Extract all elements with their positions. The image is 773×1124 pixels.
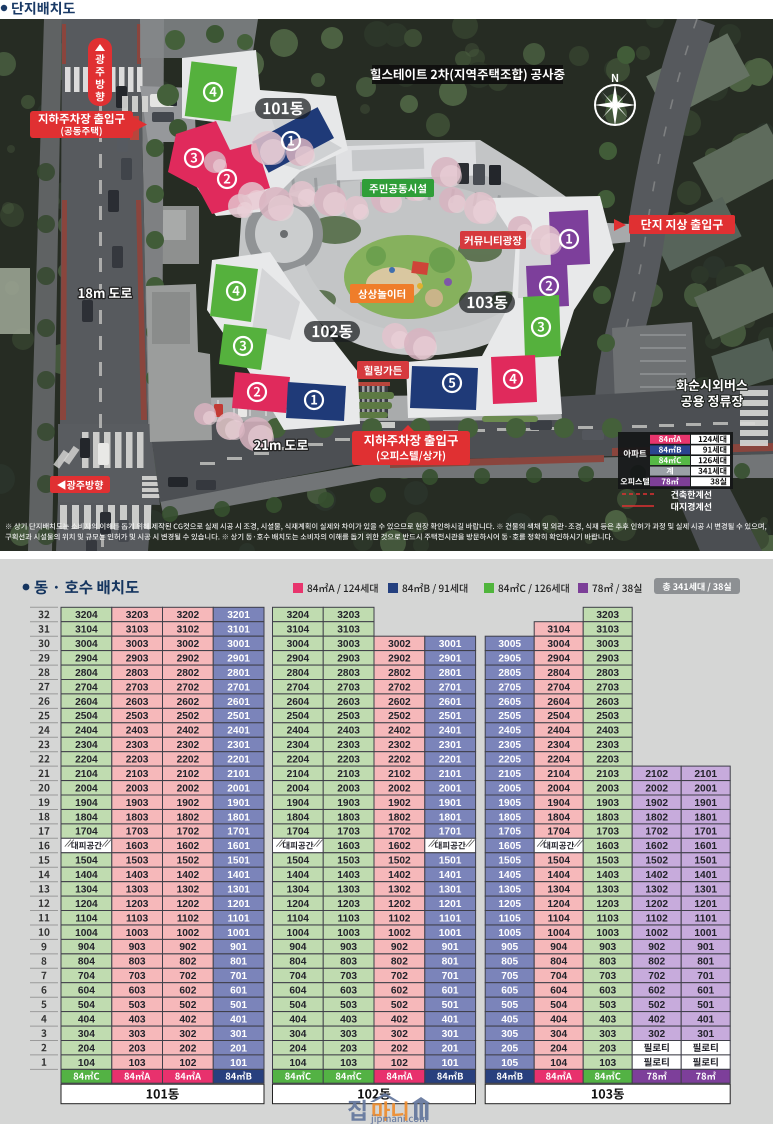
svg-text:2802: 2802 (388, 668, 411, 679)
svg-text:3003: 3003 (596, 639, 619, 650)
svg-text:1801: 1801 (227, 812, 250, 823)
svg-text:902: 902 (391, 942, 408, 953)
svg-text:1401: 1401 (439, 870, 462, 881)
svg-text:2905: 2905 (498, 653, 521, 664)
svg-text:2705: 2705 (498, 682, 521, 693)
svg-text:901: 901 (442, 942, 459, 953)
svg-text:1101: 1101 (439, 913, 461, 924)
svg-text:2305: 2305 (498, 740, 521, 751)
svg-text:1304: 1304 (547, 885, 570, 896)
svg-text:802: 802 (179, 957, 196, 968)
svg-text:1804: 1804 (75, 812, 98, 823)
svg-text:2202: 2202 (177, 755, 200, 766)
svg-text:1704: 1704 (75, 827, 98, 838)
svg-text:2801: 2801 (439, 668, 462, 679)
svg-text:3104: 3104 (75, 625, 98, 636)
svg-text:2002: 2002 (645, 783, 668, 794)
svg-text:2103: 2103 (596, 769, 619, 780)
svg-text:2601: 2601 (439, 697, 462, 708)
svg-text:1102: 1102 (646, 913, 668, 924)
svg-text:1203: 1203 (596, 899, 619, 910)
svg-text:605: 605 (501, 986, 518, 997)
svg-text:204: 204 (289, 1043, 306, 1054)
svg-text:2502: 2502 (388, 711, 411, 722)
svg-text:1405: 1405 (498, 870, 521, 881)
svg-text:303: 303 (129, 1029, 146, 1040)
svg-text:202: 202 (391, 1043, 408, 1054)
svg-text:303: 303 (599, 1029, 616, 1040)
svg-text:205: 205 (501, 1043, 518, 1054)
svg-text:2303: 2303 (126, 740, 149, 751)
svg-text:402: 402 (179, 1014, 196, 1025)
svg-text:2904: 2904 (287, 653, 310, 664)
svg-text:1704: 1704 (547, 827, 570, 838)
svg-text:702: 702 (391, 971, 408, 982)
svg-text:405: 405 (501, 1014, 518, 1025)
svg-text:1001: 1001 (694, 928, 717, 939)
svg-text:1104: 1104 (548, 913, 570, 924)
svg-text:2504: 2504 (287, 711, 310, 722)
svg-text:704: 704 (289, 971, 306, 982)
svg-text:3004: 3004 (75, 639, 98, 650)
svg-text:2003: 2003 (337, 783, 360, 794)
svg-text:501: 501 (697, 1000, 714, 1011)
svg-text:3103: 3103 (596, 625, 619, 636)
svg-text:703: 703 (599, 971, 616, 982)
svg-text:2302: 2302 (388, 740, 411, 751)
svg-text:301: 301 (230, 1029, 247, 1040)
svg-text:2005: 2005 (498, 783, 521, 794)
svg-text:301: 301 (442, 1029, 459, 1040)
svg-text:1103: 1103 (126, 913, 148, 924)
svg-text:404: 404 (550, 1014, 567, 1025)
svg-text:1502: 1502 (177, 856, 200, 867)
svg-text:1901: 1901 (439, 798, 462, 809)
svg-text:403: 403 (129, 1014, 146, 1025)
svg-text:2002: 2002 (177, 783, 200, 794)
svg-text:2903: 2903 (337, 653, 360, 664)
svg-text:1204: 1204 (75, 899, 98, 910)
svg-text:1004: 1004 (547, 928, 570, 939)
svg-text:1903: 1903 (596, 798, 619, 809)
svg-text:2704: 2704 (287, 682, 310, 693)
svg-text:1903: 1903 (126, 798, 149, 809)
svg-text:1502: 1502 (388, 856, 411, 867)
svg-text:102: 102 (179, 1058, 196, 1069)
svg-text:1301: 1301 (227, 885, 250, 896)
svg-text:1202: 1202 (177, 899, 200, 910)
svg-text:1601: 1601 (227, 841, 250, 852)
svg-text:601: 601 (230, 986, 247, 997)
svg-text:402: 402 (648, 1014, 665, 1025)
svg-text:2404: 2404 (287, 726, 310, 737)
svg-text:2001: 2001 (694, 783, 717, 794)
svg-text:403: 403 (599, 1014, 616, 1025)
svg-text:1501: 1501 (227, 856, 250, 867)
svg-text:1704: 1704 (287, 827, 310, 838)
svg-text:1702: 1702 (177, 827, 200, 838)
svg-text:1303: 1303 (337, 885, 360, 896)
svg-text:702: 702 (648, 971, 665, 982)
svg-text:505: 505 (501, 1000, 518, 1011)
svg-text:1002: 1002 (645, 928, 668, 939)
svg-text:2303: 2303 (337, 740, 360, 751)
svg-text:2702: 2702 (177, 682, 200, 693)
svg-text:801: 801 (230, 957, 247, 968)
svg-text:1703: 1703 (337, 827, 360, 838)
svg-text:2103: 2103 (126, 769, 149, 780)
svg-text:1602: 1602 (645, 841, 668, 852)
svg-text:2205: 2205 (498, 755, 521, 766)
svg-text:2903: 2903 (596, 653, 619, 664)
svg-text:103: 103 (599, 1058, 616, 1069)
svg-text:305: 305 (501, 1029, 518, 1040)
svg-text:104: 104 (550, 1058, 567, 1069)
svg-text:1602: 1602 (177, 841, 200, 852)
svg-text:503: 503 (129, 1000, 146, 1011)
svg-text:1304: 1304 (287, 885, 310, 896)
svg-text:703: 703 (340, 971, 357, 982)
svg-text:2301: 2301 (439, 740, 462, 751)
svg-text:3203: 3203 (126, 610, 149, 621)
svg-text:902: 902 (179, 942, 196, 953)
svg-text:1103: 1103 (597, 913, 619, 924)
svg-text:2804: 2804 (287, 668, 310, 679)
svg-text:103: 103 (129, 1058, 146, 1069)
svg-text:2603: 2603 (337, 697, 360, 708)
svg-text:2801: 2801 (227, 668, 250, 679)
svg-text:1204: 1204 (287, 899, 310, 910)
svg-text:604: 604 (289, 986, 306, 997)
svg-text:2601: 2601 (227, 697, 250, 708)
svg-text:1302: 1302 (177, 885, 200, 896)
svg-text:2105: 2105 (498, 769, 521, 780)
svg-text:3101: 3101 (227, 625, 250, 636)
svg-text:3004: 3004 (287, 639, 310, 650)
svg-text:104: 104 (78, 1058, 95, 1069)
svg-text:502: 502 (391, 1000, 408, 1011)
svg-text:401: 401 (697, 1014, 714, 1025)
svg-text:1705: 1705 (498, 827, 521, 838)
svg-text:1902: 1902 (645, 798, 668, 809)
svg-text:2804: 2804 (75, 668, 98, 679)
svg-text:2201: 2201 (439, 755, 462, 766)
svg-text:1605: 1605 (498, 841, 521, 852)
svg-text:805: 805 (501, 957, 518, 968)
svg-text:201: 201 (442, 1043, 459, 1054)
svg-text:2803: 2803 (126, 668, 149, 679)
svg-text:3001: 3001 (439, 639, 462, 650)
svg-text:601: 601 (697, 986, 714, 997)
svg-text:101: 101 (442, 1058, 459, 1069)
svg-text:2003: 2003 (596, 783, 619, 794)
svg-text:401: 401 (442, 1014, 459, 1025)
svg-text:604: 604 (550, 986, 567, 997)
svg-text:2803: 2803 (596, 668, 619, 679)
svg-text:2501: 2501 (227, 711, 250, 722)
svg-text:2403: 2403 (126, 726, 149, 737)
svg-text:3204: 3204 (75, 610, 98, 621)
svg-text:2402: 2402 (388, 726, 411, 737)
svg-text:1404: 1404 (287, 870, 310, 881)
svg-text:3104: 3104 (547, 625, 570, 636)
svg-text:503: 503 (599, 1000, 616, 1011)
svg-text:1401: 1401 (227, 870, 250, 881)
svg-text:2901: 2901 (439, 653, 462, 664)
svg-text:704: 704 (78, 971, 95, 982)
svg-text:2004: 2004 (547, 783, 570, 794)
svg-text:603: 603 (599, 986, 616, 997)
svg-text:1401: 1401 (694, 870, 717, 881)
svg-text:803: 803 (340, 957, 357, 968)
svg-text:2503: 2503 (337, 711, 360, 722)
svg-text:1901: 1901 (227, 798, 250, 809)
svg-text:3104: 3104 (287, 625, 310, 636)
svg-text:3103: 3103 (337, 625, 360, 636)
svg-text:2203: 2203 (596, 755, 619, 766)
svg-text:3003: 3003 (337, 639, 360, 650)
svg-text:203: 203 (129, 1043, 146, 1054)
svg-text:2703: 2703 (126, 682, 149, 693)
svg-text:2904: 2904 (547, 653, 570, 664)
svg-text:1504: 1504 (547, 856, 570, 867)
svg-text:1501: 1501 (694, 856, 717, 867)
svg-text:201: 201 (230, 1043, 247, 1054)
svg-text:1202: 1202 (645, 899, 668, 910)
svg-text:2605: 2605 (498, 697, 521, 708)
svg-text:501: 501 (442, 1000, 459, 1011)
svg-text:1102: 1102 (177, 913, 199, 924)
svg-text:1703: 1703 (596, 827, 619, 838)
svg-text:1803: 1803 (596, 812, 619, 823)
svg-text:1702: 1702 (388, 827, 411, 838)
svg-text:1404: 1404 (547, 870, 570, 881)
svg-text:2402: 2402 (177, 726, 200, 737)
svg-text:1504: 1504 (287, 856, 310, 867)
svg-text:1804: 1804 (287, 812, 310, 823)
svg-text:701: 701 (442, 971, 459, 982)
svg-text:2104: 2104 (287, 769, 310, 780)
svg-text:1104: 1104 (287, 913, 309, 924)
svg-text:1403: 1403 (337, 870, 360, 881)
svg-text:1503: 1503 (337, 856, 360, 867)
svg-text:2603: 2603 (126, 697, 149, 708)
svg-text:904: 904 (550, 942, 567, 953)
svg-text:502: 502 (648, 1000, 665, 1011)
svg-text:302: 302 (391, 1029, 408, 1040)
svg-text:504: 504 (550, 1000, 567, 1011)
svg-text:2002: 2002 (388, 783, 411, 794)
svg-text:104: 104 (289, 1058, 306, 1069)
svg-text:2901: 2901 (227, 653, 250, 664)
svg-text:1902: 1902 (388, 798, 411, 809)
svg-text:1904: 1904 (547, 798, 570, 809)
svg-text:2802: 2802 (177, 668, 200, 679)
svg-text:1501: 1501 (439, 856, 462, 867)
svg-text:803: 803 (599, 957, 616, 968)
svg-text:2401: 2401 (227, 726, 250, 737)
svg-text:703: 703 (129, 971, 146, 982)
svg-text:2404: 2404 (547, 726, 570, 737)
svg-text:1403: 1403 (126, 870, 149, 881)
svg-text:1402: 1402 (177, 870, 200, 881)
svg-text:2204: 2204 (75, 755, 98, 766)
svg-text:602: 602 (648, 986, 665, 997)
svg-text:2301: 2301 (227, 740, 250, 751)
svg-text:804: 804 (78, 957, 95, 968)
svg-text:1701: 1701 (694, 827, 717, 838)
svg-text:1503: 1503 (596, 856, 619, 867)
svg-text:502: 502 (179, 1000, 196, 1011)
svg-text:2903: 2903 (126, 653, 149, 664)
svg-text:2702: 2702 (388, 682, 411, 693)
svg-text:2803: 2803 (337, 668, 360, 679)
svg-text:1302: 1302 (388, 885, 411, 896)
svg-text:1201: 1201 (694, 899, 717, 910)
svg-text:303: 303 (340, 1029, 357, 1040)
svg-text:1901: 1901 (694, 798, 717, 809)
svg-text:2001: 2001 (227, 783, 250, 794)
svg-text:1005: 1005 (498, 928, 521, 939)
svg-text:2604: 2604 (547, 697, 570, 708)
svg-text:1801: 1801 (439, 812, 462, 823)
svg-text:1404: 1404 (75, 870, 98, 881)
svg-text:302: 302 (179, 1029, 196, 1040)
svg-text:2704: 2704 (75, 682, 98, 693)
svg-text:2001: 2001 (439, 783, 462, 794)
svg-text:401: 401 (230, 1014, 247, 1025)
svg-text:1302: 1302 (645, 885, 668, 896)
svg-text:1603: 1603 (337, 841, 360, 852)
svg-text:601: 601 (442, 986, 459, 997)
svg-text:2101: 2101 (694, 769, 717, 780)
svg-text:802: 802 (391, 957, 408, 968)
svg-text:404: 404 (289, 1014, 306, 1025)
svg-text:804: 804 (289, 957, 306, 968)
svg-text:2604: 2604 (287, 697, 310, 708)
svg-text:1201: 1201 (227, 899, 250, 910)
svg-text:1402: 1402 (645, 870, 668, 881)
svg-text:2502: 2502 (177, 711, 200, 722)
svg-text:1003: 1003 (337, 928, 360, 939)
svg-text:2902: 2902 (388, 653, 411, 664)
svg-text:701: 701 (230, 971, 247, 982)
svg-text:3002: 3002 (177, 639, 200, 650)
svg-text:102: 102 (391, 1058, 408, 1069)
svg-text:901: 901 (230, 942, 247, 953)
svg-text:1203: 1203 (337, 899, 360, 910)
svg-text:2503: 2503 (126, 711, 149, 722)
svg-text:604: 604 (78, 986, 95, 997)
svg-text:702: 702 (179, 971, 196, 982)
svg-text:2805: 2805 (498, 668, 521, 679)
svg-text:905: 905 (501, 942, 518, 953)
svg-text:903: 903 (340, 942, 357, 953)
svg-text:302: 302 (648, 1029, 665, 1040)
svg-text:2302: 2302 (177, 740, 200, 751)
svg-text:2602: 2602 (388, 697, 411, 708)
svg-text:3203: 3203 (337, 610, 360, 621)
svg-text:2603: 2603 (596, 697, 619, 708)
svg-text:804: 804 (550, 957, 567, 968)
svg-text:1701: 1701 (439, 827, 462, 838)
svg-text:105: 105 (501, 1058, 518, 1069)
svg-text:1204: 1204 (547, 899, 570, 910)
svg-text:704: 704 (550, 971, 567, 982)
svg-text:2203: 2203 (337, 755, 360, 766)
svg-text:2401: 2401 (439, 726, 462, 737)
svg-text:2501: 2501 (439, 711, 462, 722)
svg-text:1001: 1001 (439, 928, 462, 939)
svg-text:1803: 1803 (126, 812, 149, 823)
svg-text:1703: 1703 (126, 827, 149, 838)
svg-text:3202: 3202 (177, 610, 200, 621)
svg-text:701: 701 (697, 971, 714, 982)
svg-text:1602: 1602 (388, 841, 411, 852)
svg-text:1701: 1701 (227, 827, 250, 838)
svg-text:1802: 1802 (388, 812, 411, 823)
svg-text:403: 403 (340, 1014, 357, 1025)
svg-text:1202: 1202 (388, 899, 411, 910)
svg-text:1801: 1801 (694, 812, 717, 823)
svg-text:3201: 3201 (227, 610, 250, 621)
svg-text:1803: 1803 (337, 812, 360, 823)
svg-text:2403: 2403 (596, 726, 619, 737)
svg-text:1603: 1603 (126, 841, 149, 852)
svg-text:1003: 1003 (126, 928, 149, 939)
svg-text:2804: 2804 (547, 668, 570, 679)
svg-text:1004: 1004 (287, 928, 310, 939)
svg-text:2404: 2404 (75, 726, 98, 737)
svg-text:2104: 2104 (547, 769, 570, 780)
svg-text:1203: 1203 (126, 899, 149, 910)
svg-text:1104: 1104 (75, 913, 97, 924)
svg-text:2604: 2604 (75, 697, 98, 708)
svg-text:1904: 1904 (287, 798, 310, 809)
svg-text:1904: 1904 (75, 798, 98, 809)
svg-text:203: 203 (340, 1043, 357, 1054)
svg-text:3102: 3102 (177, 625, 200, 636)
svg-text:3103: 3103 (126, 625, 149, 636)
svg-text:504: 504 (289, 1000, 306, 1011)
svg-text:1003: 1003 (596, 928, 619, 939)
svg-text:2701: 2701 (227, 682, 250, 693)
svg-text:304: 304 (289, 1029, 306, 1040)
svg-text:801: 801 (442, 957, 459, 968)
svg-text:3203: 3203 (596, 610, 619, 621)
svg-text:2503: 2503 (596, 711, 619, 722)
svg-text:803: 803 (129, 957, 146, 968)
svg-text:2303: 2303 (596, 740, 619, 751)
svg-text:202: 202 (179, 1043, 196, 1054)
svg-text:203: 203 (599, 1043, 616, 1054)
svg-text:2102: 2102 (388, 769, 411, 780)
svg-text:3001: 3001 (227, 639, 250, 650)
svg-text:2202: 2202 (388, 755, 411, 766)
svg-text:2201: 2201 (227, 755, 250, 766)
svg-text:3003: 3003 (126, 639, 149, 650)
svg-text:802: 802 (648, 957, 665, 968)
svg-text:1504: 1504 (75, 856, 98, 867)
svg-text:1001: 1001 (227, 928, 250, 939)
svg-text:1601: 1601 (694, 841, 717, 852)
svg-text:402: 402 (391, 1014, 408, 1025)
svg-text:2101: 2101 (227, 769, 250, 780)
svg-text:603: 603 (129, 986, 146, 997)
svg-text:2701: 2701 (439, 682, 462, 693)
svg-text:2703: 2703 (596, 682, 619, 693)
svg-text:2204: 2204 (547, 755, 570, 766)
